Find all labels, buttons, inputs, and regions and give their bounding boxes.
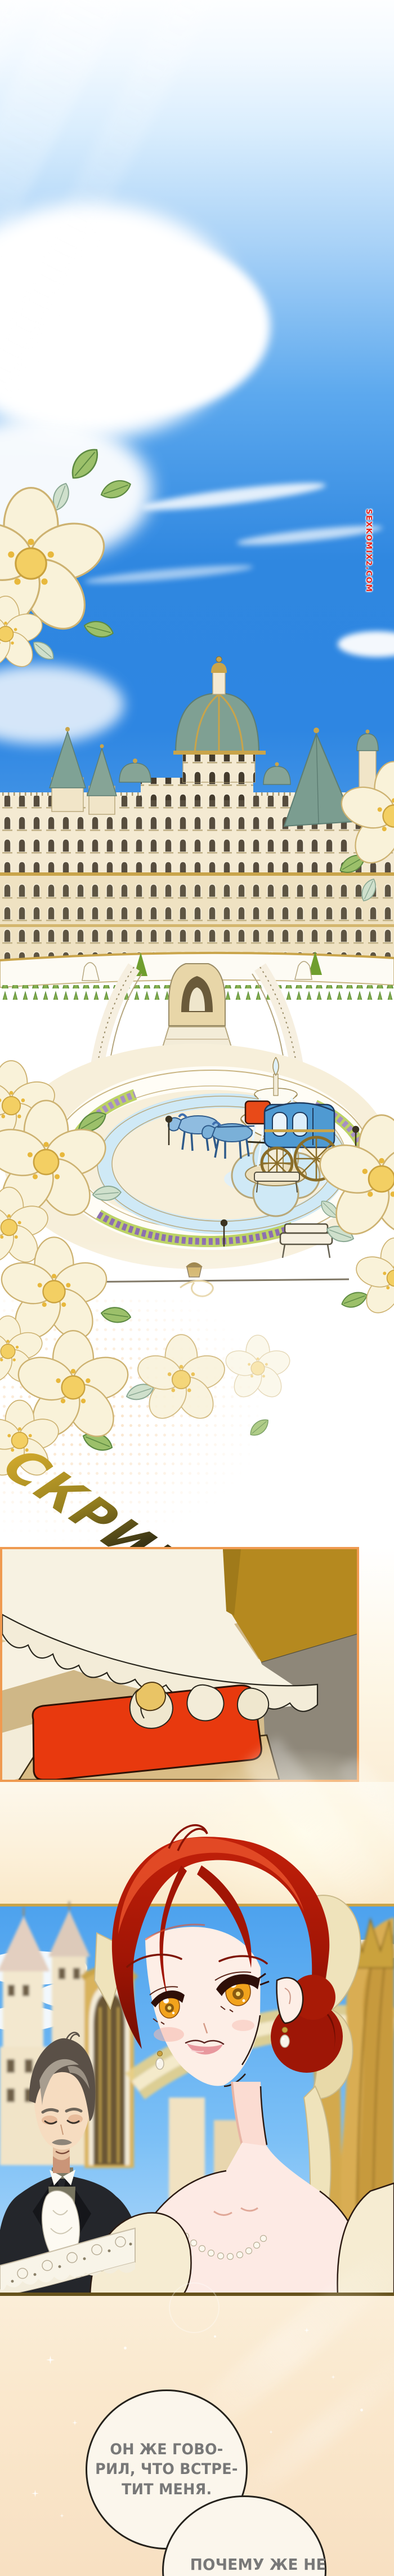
sparkle <box>46 2356 55 2364</box>
sparkle <box>60 2513 64 2518</box>
webtoon-page: SEXKOMIX2.COM <box>0 0 394 2576</box>
sparkle <box>269 2430 273 2434</box>
blush <box>232 2020 254 2031</box>
bubble-line: ТИТ МЕНЯ. <box>122 2480 212 2499</box>
flower-cluster-top-left <box>0 444 133 673</box>
bubble-line: ПОЧЕМУ ЖЕ НЕ <box>190 2555 326 2574</box>
ruffle-pile <box>187 1685 223 1721</box>
flower-cluster-left <box>0 1061 155 1482</box>
flower-cluster-bottom <box>133 1334 293 1439</box>
bubble-line: ОН ЖЕ ГОВО- <box>110 2440 223 2459</box>
sparkle <box>331 2375 335 2379</box>
sparkle-dot <box>360 2409 363 2411</box>
flower-decorations <box>0 428 394 1555</box>
earring <box>156 2051 164 2070</box>
bubble-line: РИЛ, ЧТО ВСТРЕ- <box>95 2459 238 2479</box>
panel-footstep <box>0 1547 359 1782</box>
glow-ring <box>169 2282 220 2333</box>
sparkle <box>32 2490 39 2497</box>
flower-cluster-right <box>314 1115 394 1319</box>
sparkle-dot <box>124 2347 127 2349</box>
ruffle-pile <box>238 1688 268 1720</box>
sparkle <box>72 2420 78 2426</box>
portrait-illustration <box>0 1782 394 2296</box>
sparkle-dot <box>214 2335 216 2338</box>
flower-right-corner <box>336 761 394 903</box>
blush <box>154 2027 184 2042</box>
